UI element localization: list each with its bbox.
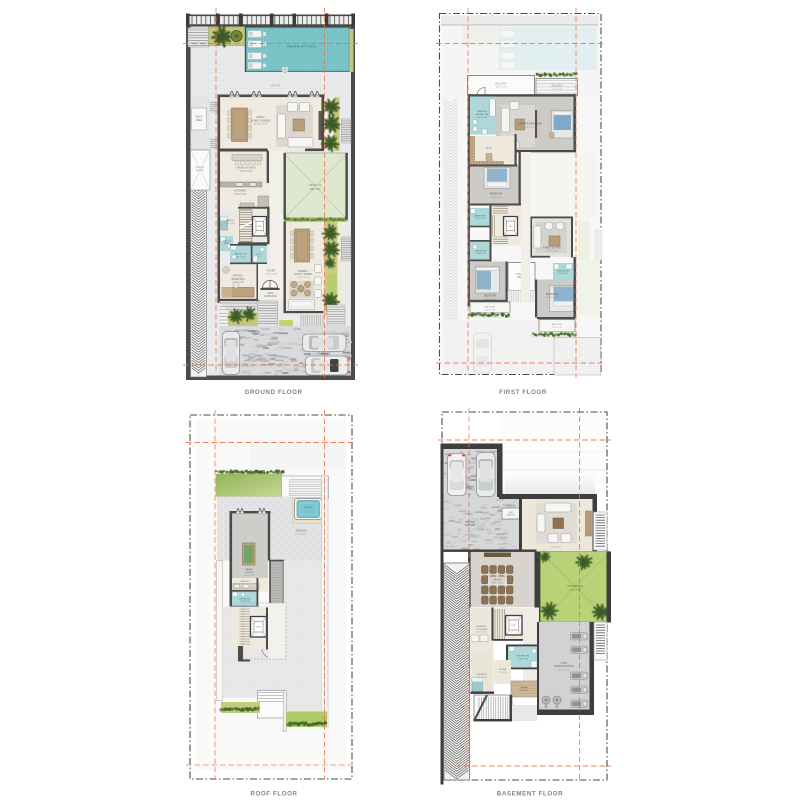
svg-text:BEDROOM: BEDROOM: [490, 193, 502, 196]
svg-text:TERRACE: TERRACE: [295, 530, 307, 533]
svg-text:4.00 X 7.70: 4.00 X 7.70: [244, 575, 255, 577]
svg-text:11.50 X 6.00: 11.50 X 6.00: [254, 123, 269, 126]
svg-text:4.00 X 2.60: 4.00 X 2.60: [477, 117, 488, 119]
svg-text:1.80 X 2.60: 1.80 X 2.60: [235, 256, 246, 258]
svg-text:2.10 X 2.00: 2.10 X 2.00: [224, 223, 235, 225]
svg-text:MASTER BEDROOM: MASTER BEDROOM: [519, 123, 542, 126]
svg-text:/ STORAGE: / STORAGE: [476, 628, 488, 631]
svg-text:LIVING / DINING: LIVING / DINING: [294, 273, 312, 276]
svg-text:MAJLIS: MAJLIS: [493, 579, 502, 582]
svg-text:BATHROOM: BATHROOM: [474, 215, 486, 218]
svg-text:ENTRANCE: ENTRANCE: [264, 295, 277, 298]
svg-text:FIRST FLOOR: FIRST FLOOR: [499, 389, 547, 396]
svg-text:2.04 X 1.75: 2.04 X 1.75: [476, 253, 486, 255]
svg-text:4.00 X 4.30: 4.00 X 4.30: [547, 297, 558, 299]
svg-text:4.00 X 4.00: 4.00 X 4.00: [265, 274, 277, 276]
svg-text:BATHROOM: BATHROOM: [475, 250, 487, 253]
svg-text:BEDROOM: BEDROOM: [546, 294, 558, 296]
svg-text:4.00 X 1.30: 4.00 X 1.30: [495, 87, 507, 89]
svg-text:ROOM: ROOM: [246, 572, 253, 574]
svg-text:LIFT: LIFT: [508, 226, 513, 228]
svg-text:W.I.C: W.I.C: [486, 147, 492, 150]
svg-text:AREA: AREA: [196, 119, 203, 122]
svg-text:2.10 X 2.40: 2.10 X 2.40: [518, 658, 529, 660]
svg-text:BASEMENT FLOOR: BASEMENT FLOOR: [497, 791, 564, 798]
svg-text:BATHROOM: BATHROOM: [234, 253, 247, 256]
svg-text:7.50 X 12.00: 7.50 X 12.00: [297, 277, 310, 279]
svg-text:LIFT: LIFT: [256, 627, 261, 629]
svg-text:BATHROOM: BATHROOM: [239, 598, 251, 601]
svg-text:6.00 X 8.30: 6.00 X 8.30: [492, 583, 503, 585]
svg-text:FOYER: FOYER: [267, 270, 276, 273]
svg-text:4.00 X 4.25: 4.00 X 4.25: [490, 197, 502, 199]
svg-text:FAMILY SITTING: FAMILY SITTING: [543, 247, 561, 250]
svg-text:6.00 X 4.25: 6.00 X 4.25: [524, 127, 536, 129]
svg-text:BELOW: BELOW: [196, 170, 205, 172]
svg-text:JACUZZI: JACUZZI: [305, 506, 313, 509]
svg-text:GROUND FLOOR: GROUND FLOOR: [244, 389, 302, 396]
svg-text:BATH: BATH: [224, 242, 230, 245]
svg-text:4.00 X 0.60: 4.00 X 0.60: [477, 677, 488, 679]
svg-text:MASTER: MASTER: [477, 110, 487, 113]
svg-text:PARKING: PARKING: [465, 524, 476, 527]
svg-text:COURTYARD: COURTYARD: [567, 585, 583, 588]
svg-text:WARDROBE: WARDROBE: [557, 270, 569, 273]
svg-text:LIFT: LIFT: [511, 625, 516, 627]
svg-text:BALCONY: BALCONY: [552, 85, 563, 88]
svg-text:DRIVER'S: DRIVER'S: [477, 674, 488, 676]
svg-text:STEAM: STEAM: [499, 668, 506, 671]
svg-text:7.40 X 4.64: 7.40 X 4.64: [551, 547, 562, 549]
svg-text:4.00 X 2.40: 4.00 X 2.40: [552, 89, 563, 91]
svg-text:MAIN: MAIN: [268, 292, 274, 295]
svg-text:5.70 X 4.10: 5.70 X 4.10: [295, 534, 307, 536]
svg-text:4.00 X 5.20: 4.00 X 5.20: [234, 193, 247, 196]
svg-text:MAID'S: MAID'S: [226, 219, 234, 222]
svg-text:4.00 X 4.30: 4.00 X 4.30: [547, 251, 558, 253]
svg-text:BELOW: BELOW: [310, 187, 320, 191]
svg-text:BEDROOM: BEDROOM: [484, 295, 496, 298]
svg-text:6.70 X 4.70: 6.70 X 4.70: [558, 669, 570, 671]
svg-text:SWIMMING POOL: SWIMMING POOL: [287, 45, 317, 49]
svg-text:OPEN TO: OPEN TO: [195, 167, 205, 169]
svg-text:4.00 X 0.90: 4.00 X 0.90: [476, 632, 487, 634]
svg-text:PATIO: PATIO: [271, 84, 280, 88]
svg-text:BALCONY: BALCONY: [485, 306, 496, 309]
svg-text:ROOF FLOOR: ROOF FLOOR: [250, 791, 297, 798]
svg-text:PANTRY: PANTRY: [241, 580, 250, 583]
svg-text:2.5 X 2.05: 2.5 X 2.05: [520, 690, 529, 692]
svg-text:SAUNA: SAUNA: [520, 686, 528, 689]
svg-text:MULTIFUNCTION: MULTIFUNCTION: [554, 665, 574, 668]
svg-text:6.70 X 1.20: 6.70 X 1.20: [552, 327, 562, 329]
svg-text:BATHROOM: BATHROOM: [476, 113, 489, 116]
svg-text:GAMES: GAMES: [245, 568, 253, 571]
svg-text:W.C: W.C: [258, 256, 262, 258]
svg-text:2.10 X 1.90: 2.10 X 1.90: [475, 218, 485, 220]
svg-text:BALCONY: BALCONY: [495, 83, 507, 86]
svg-text:STATION: STATION: [507, 514, 516, 517]
svg-text:LIFT: LIFT: [257, 226, 262, 228]
svg-text:LAUNDRY: LAUNDRY: [476, 625, 487, 628]
svg-text:BALCONY: BALCONY: [552, 323, 563, 326]
svg-text:2.90 X 5.20: 2.90 X 5.20: [240, 170, 253, 173]
svg-text:5.5 X 1.25: 5.5 X 1.25: [498, 672, 507, 674]
svg-text:4.00 X 1.30: 4.00 X 1.30: [485, 309, 495, 311]
svg-text:4.00 X 1.50: 4.00 X 1.50: [558, 273, 568, 275]
svg-text:BATHROOM: BATHROOM: [517, 655, 530, 658]
